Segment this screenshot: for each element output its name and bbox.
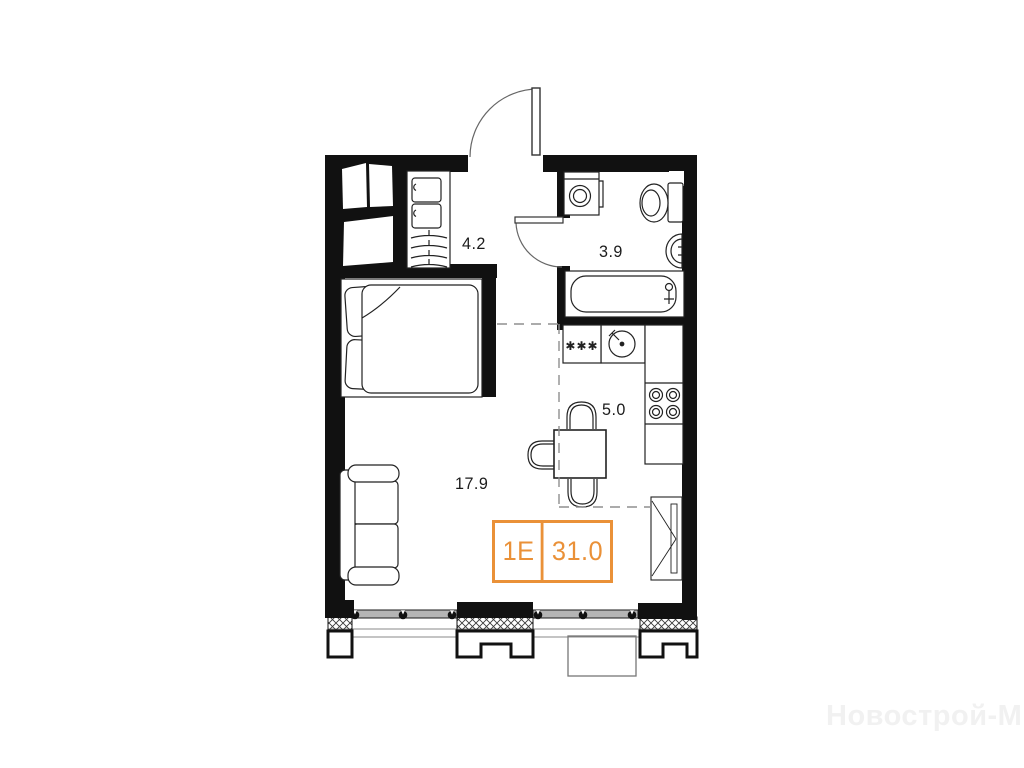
toilet xyxy=(640,183,683,222)
floor-plan-canvas: ✱✱✱ xyxy=(0,0,1024,768)
washing-machine xyxy=(564,172,603,215)
duvet xyxy=(362,285,478,393)
floorplan-page: ✱✱✱ xyxy=(0,0,1024,768)
unit-type-label: 1E xyxy=(497,523,544,580)
chair-left xyxy=(528,441,555,469)
bed xyxy=(341,279,482,397)
room-label-hallway: 4.2 xyxy=(462,234,486,254)
bathroom-sink xyxy=(666,234,682,268)
sofa-back xyxy=(340,470,355,580)
bathroom-fixtures xyxy=(564,172,684,317)
entry-door xyxy=(470,88,540,157)
chair-top xyxy=(567,402,596,429)
pier-right xyxy=(640,631,697,657)
bathtub xyxy=(565,271,684,317)
chair-bottom xyxy=(568,479,597,507)
room-label-living-room: 17.9 xyxy=(455,474,488,494)
bathroom-door xyxy=(515,217,563,267)
watermark: Новострой-М xyxy=(826,700,1024,733)
pier-left xyxy=(328,631,352,657)
freezer-symbol: ✱✱✱ xyxy=(565,339,598,353)
pier-middle xyxy=(457,631,533,657)
sofa-armrest xyxy=(348,567,399,585)
hallway-wardrobe xyxy=(407,171,450,268)
closet xyxy=(651,497,682,580)
sofa-cushion xyxy=(353,524,398,568)
dining-table xyxy=(554,430,606,478)
dining-set xyxy=(528,402,606,507)
balcony xyxy=(568,636,636,676)
sofa xyxy=(340,465,399,585)
room-label-bathroom: 3.9 xyxy=(599,242,623,262)
sofa-cushion xyxy=(353,481,398,524)
facade-piers xyxy=(328,631,697,657)
kitchen-counter xyxy=(645,325,683,464)
sofa-armrest xyxy=(348,465,399,482)
unit-area-label: 31.0 xyxy=(547,523,608,580)
wardrobe-shelf xyxy=(412,204,441,228)
room-label-kitchen: 5.0 xyxy=(602,400,626,420)
wardrobe-shelf xyxy=(412,178,441,202)
unit-badge: 1E 31.0 xyxy=(492,520,613,583)
